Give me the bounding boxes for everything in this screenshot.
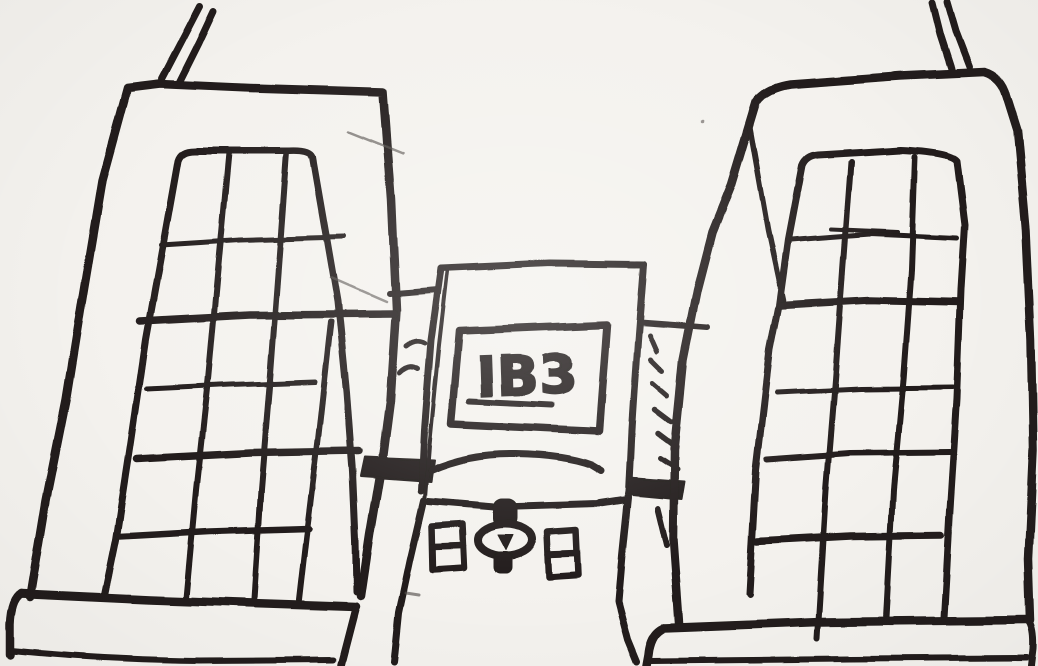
hatch-mark [650,335,657,351]
window-rail [767,452,950,459]
bridge-top-line [389,290,438,294]
window-outline [749,150,965,618]
antenna-rod [162,6,200,79]
central-right-edge [629,264,644,493]
stray-dot [701,120,705,124]
ibb-sign: IB3 [451,325,607,431]
right-tower-window-grid [749,150,965,638]
window-rail [161,237,344,245]
corner-restroke [750,128,783,300]
window-mullion [299,322,331,600]
hatch-mark [655,409,671,421]
hatch-mark [399,367,418,373]
stray-dash [406,592,419,594]
window-bar [548,554,577,555]
central-left-edge [421,268,441,490]
central-top-edge [441,263,644,268]
sketch-drawing: Hand-drawn black ink sketch: two tall to… [0,0,1038,666]
antenna-rod [179,11,214,83]
left-tower-window-grid [104,151,394,600]
window-bar [433,546,463,547]
window-rail [781,300,960,305]
base-left-edge [10,594,21,655]
awning-band [428,454,624,507]
bridge-lower-line [657,508,666,545]
entrance-left-window [432,524,464,570]
hatch-mark [651,359,663,371]
right-tower-base [647,620,1033,666]
base-right-edge [341,607,356,665]
sign-underline [469,401,552,405]
door-mark [498,535,513,550]
awning-bottom-curve [428,500,624,507]
left-tower-antenna-icon [162,6,214,83]
facade-right-edge [618,497,637,662]
window-rail [140,314,394,321]
hatch-mark [406,341,425,346]
base-bottom-edge [650,658,1027,661]
stray-line [348,131,403,153]
window-rail [147,382,315,389]
entrance [478,499,532,573]
left-tower [10,6,396,665]
left-tower-base [10,594,356,665]
column-bottom [494,552,512,573]
base-bottom-edge [11,651,333,661]
base-top-edge [664,620,1027,628]
sign-text: IB3 [475,342,579,409]
right-tower-antenna-icon [932,2,969,69]
sketch-paper: Hand-drawn black ink sketch: two tall to… [0,0,1038,666]
facade-left-edge [394,500,424,662]
window-rail [119,528,309,536]
bridge-top-line [640,322,708,327]
right-tower [647,2,1033,666]
window-rail [791,234,957,240]
hatch-mark [653,383,667,395]
window-rail [777,388,953,393]
window-rail-restroke [831,229,897,232]
window-mullion [254,152,287,600]
entrance-right-window [547,531,578,577]
window-rail [757,535,941,541]
window-rail [137,451,359,459]
awning-top-curve [431,454,602,471]
